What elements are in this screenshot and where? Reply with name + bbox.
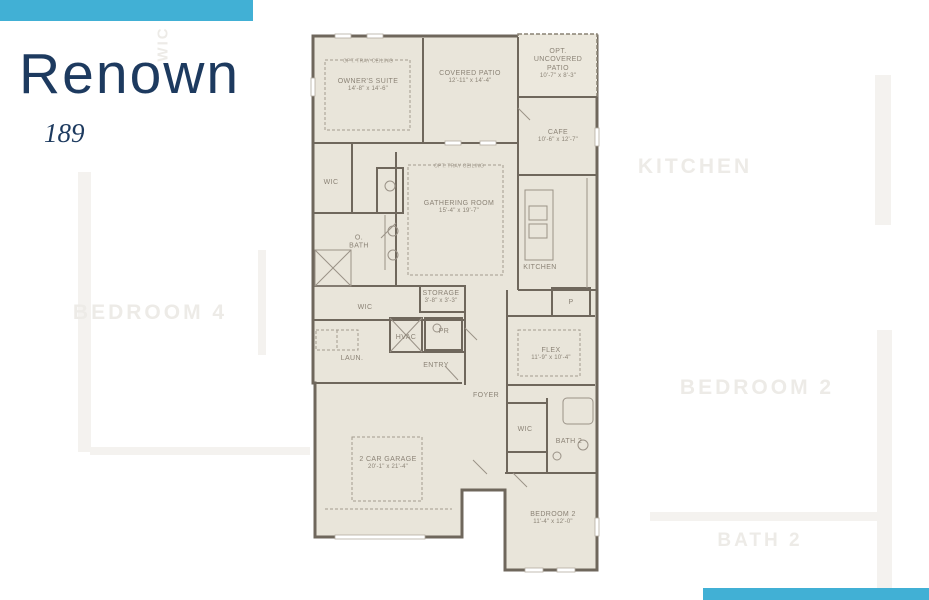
room-label-garage: 2 CAR GARAGE20'-1" x 21'-4" (359, 456, 416, 472)
floor-plan: OPT. TRAY CEILING OWNER'S SUITE14'-8" x … (295, 28, 607, 575)
plan-title: Renown (19, 46, 240, 103)
room-label-opt-patio: OPT. UNCOVERED PATIO10'-7" x 8'-3" (525, 48, 591, 80)
room-label-wic-bed2: WIC (518, 426, 533, 434)
watermark-wall (258, 250, 266, 355)
room-label-storage: STORAGE3'-8" x 3'-3" (423, 290, 460, 306)
room-label-bath2: BATH 2 (556, 438, 582, 446)
room-label-cafe: CAFE10'-6" x 12'-7" (538, 129, 578, 145)
watermark-label-kitchen: KITCHEN (638, 155, 752, 179)
watermark-wall (877, 330, 892, 590)
watermark-wall (90, 447, 310, 455)
bottom-accent-bar (703, 588, 929, 600)
room-label-hvac: HVAC (396, 334, 417, 342)
watermark-label-bedroom4: BEDROOM 4 (73, 301, 227, 325)
room-label-owners-suite: OWNER'S SUITE14'-8" x 14'-6" (338, 78, 399, 94)
top-accent-bar (0, 0, 253, 21)
room-label-bedroom2: BEDROOM 211'-4" x 12'-0" (530, 511, 576, 527)
plan-number: 189 (44, 118, 85, 149)
room-label-laundry: LAUN. (341, 355, 364, 363)
room-label-pantry: P (568, 299, 573, 307)
room-label-flex: FLEX11'-9" x 10'-4" (531, 347, 570, 363)
room-label-foyer: FOYER (473, 392, 499, 400)
annotation-tray-gathering: OPT. TRAY CEILING (434, 153, 484, 172)
room-label-gathering: GATHERING ROOM15'-4" x 19'-7" (424, 200, 494, 216)
room-label-entry: ENTRY (423, 362, 449, 370)
room-label-wic-hall: WIC (358, 304, 373, 312)
watermark-wall (650, 512, 877, 521)
room-label-o-bath: O. BATH (346, 235, 372, 252)
watermark-wall (875, 75, 891, 225)
annotation-tray-owners: OPT. TRAY CEILING (343, 48, 393, 67)
room-label-covered-patio: COVERED PATIO12'-11" x 14'-4" (439, 70, 501, 86)
watermark-label-bedroom2: BEDROOM 2 (680, 376, 834, 400)
room-label-wic-owner: WIC (324, 179, 339, 187)
room-label-pr: PR (439, 328, 450, 336)
watermark-label-bath2: BATH 2 (717, 530, 802, 552)
room-label-kitchen: KITCHEN (523, 264, 557, 272)
